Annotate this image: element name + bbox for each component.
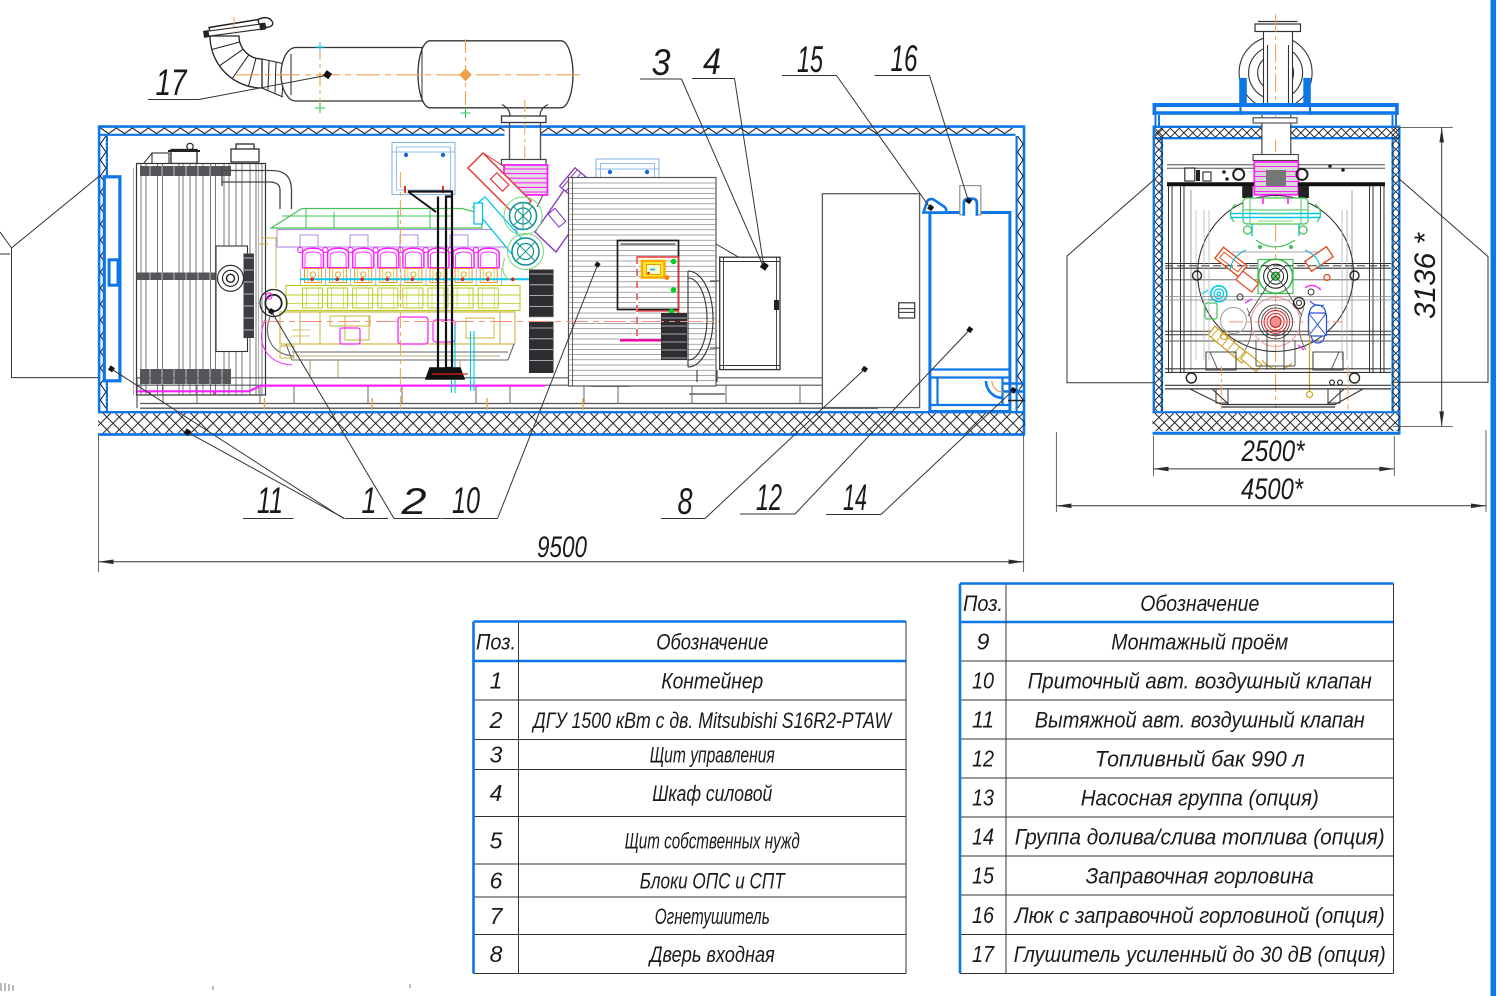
svg-text:17: 17 (972, 941, 995, 967)
svg-text:13: 13 (972, 785, 994, 811)
svg-text:Огнетушитель: Огнетушитель (655, 904, 770, 929)
svg-text:11: 11 (972, 707, 994, 733)
svg-text:4: 4 (703, 41, 721, 82)
svg-text:14: 14 (843, 477, 867, 518)
svg-text:4500*: 4500* (1241, 473, 1304, 506)
svg-text:15: 15 (797, 39, 823, 80)
svg-text:Вытяжной авт. воздушный клапан: Вытяжной авт. воздушный клапан (1035, 708, 1365, 733)
svg-text:12: 12 (972, 746, 994, 772)
svg-text:7: 7 (490, 903, 504, 929)
svg-text:Приточный авт. воздушный клапа: Приточный авт. воздушный клапан (1028, 669, 1372, 694)
svg-text:9: 9 (977, 629, 990, 655)
svg-text:10: 10 (452, 480, 480, 521)
svg-text:11: 11 (257, 480, 283, 521)
svg-text:1: 1 (490, 668, 503, 694)
svg-text:10: 10 (972, 668, 994, 694)
svg-text:2: 2 (400, 481, 427, 522)
svg-text:4: 4 (490, 780, 503, 806)
svg-text:Контейнер: Контейнер (661, 669, 763, 694)
svg-text:Топливный бак 990 л: Топливный бак 990 л (1095, 747, 1305, 772)
svg-text:14: 14 (972, 824, 994, 850)
svg-text:3: 3 (490, 742, 503, 768)
svg-text:3: 3 (652, 42, 671, 83)
svg-text:1: 1 (362, 480, 377, 521)
svg-text:Щит собственных нужд: Щит собственных нужд (625, 828, 800, 853)
svg-text:2: 2 (489, 707, 503, 733)
svg-text:Шкаф силовой: Шкаф силовой (652, 781, 772, 806)
svg-text:16: 16 (891, 38, 918, 79)
svg-text:Заправочная горловина: Заправочная горловина (1086, 864, 1314, 889)
svg-text:Насосная группа (опция): Насосная группа (опция) (1081, 786, 1319, 811)
svg-text:Монтажный проём: Монтажный проём (1111, 630, 1288, 655)
svg-text:Поз.: Поз. (476, 629, 516, 654)
svg-text:Блоки ОПС и СПТ: Блоки ОПС и СПТ (640, 869, 787, 894)
svg-text:2500*: 2500* (1241, 435, 1306, 468)
svg-text:8: 8 (678, 481, 693, 522)
svg-text:Дверь входная: Дверь входная (647, 942, 774, 967)
svg-text:12: 12 (756, 477, 782, 518)
svg-text:15: 15 (972, 863, 994, 889)
svg-text:6: 6 (490, 868, 503, 894)
svg-text:8: 8 (490, 941, 503, 967)
svg-text:ДГУ 1500 кВт с дв. Mitsubishi: ДГУ 1500 кВт с дв. Mitsubishi S16R2-PTAW (531, 708, 893, 733)
svg-text:Группа долива/слива топлива (о: Группа долива/слива топлива (опция) (1015, 825, 1385, 850)
svg-text:3136 *: 3136 * (1409, 232, 1442, 319)
svg-text:5: 5 (490, 827, 503, 853)
svg-text:Обозначение: Обозначение (656, 629, 768, 654)
svg-text:16: 16 (972, 902, 994, 928)
svg-text:9500: 9500 (537, 531, 587, 564)
svg-text:Поз.: Поз. (963, 591, 1003, 616)
svg-text:Обозначение: Обозначение (1140, 591, 1259, 616)
svg-text:Глушитель усиленный до 30 дВ (: Глушитель усиленный до 30 дВ (опция) (1014, 942, 1386, 967)
svg-text:Щит управления: Щит управления (650, 743, 775, 768)
svg-text:Люк с заправочной горловиной (: Люк с заправочной горловиной (опция) (1013, 903, 1385, 928)
svg-text:17: 17 (156, 62, 188, 103)
